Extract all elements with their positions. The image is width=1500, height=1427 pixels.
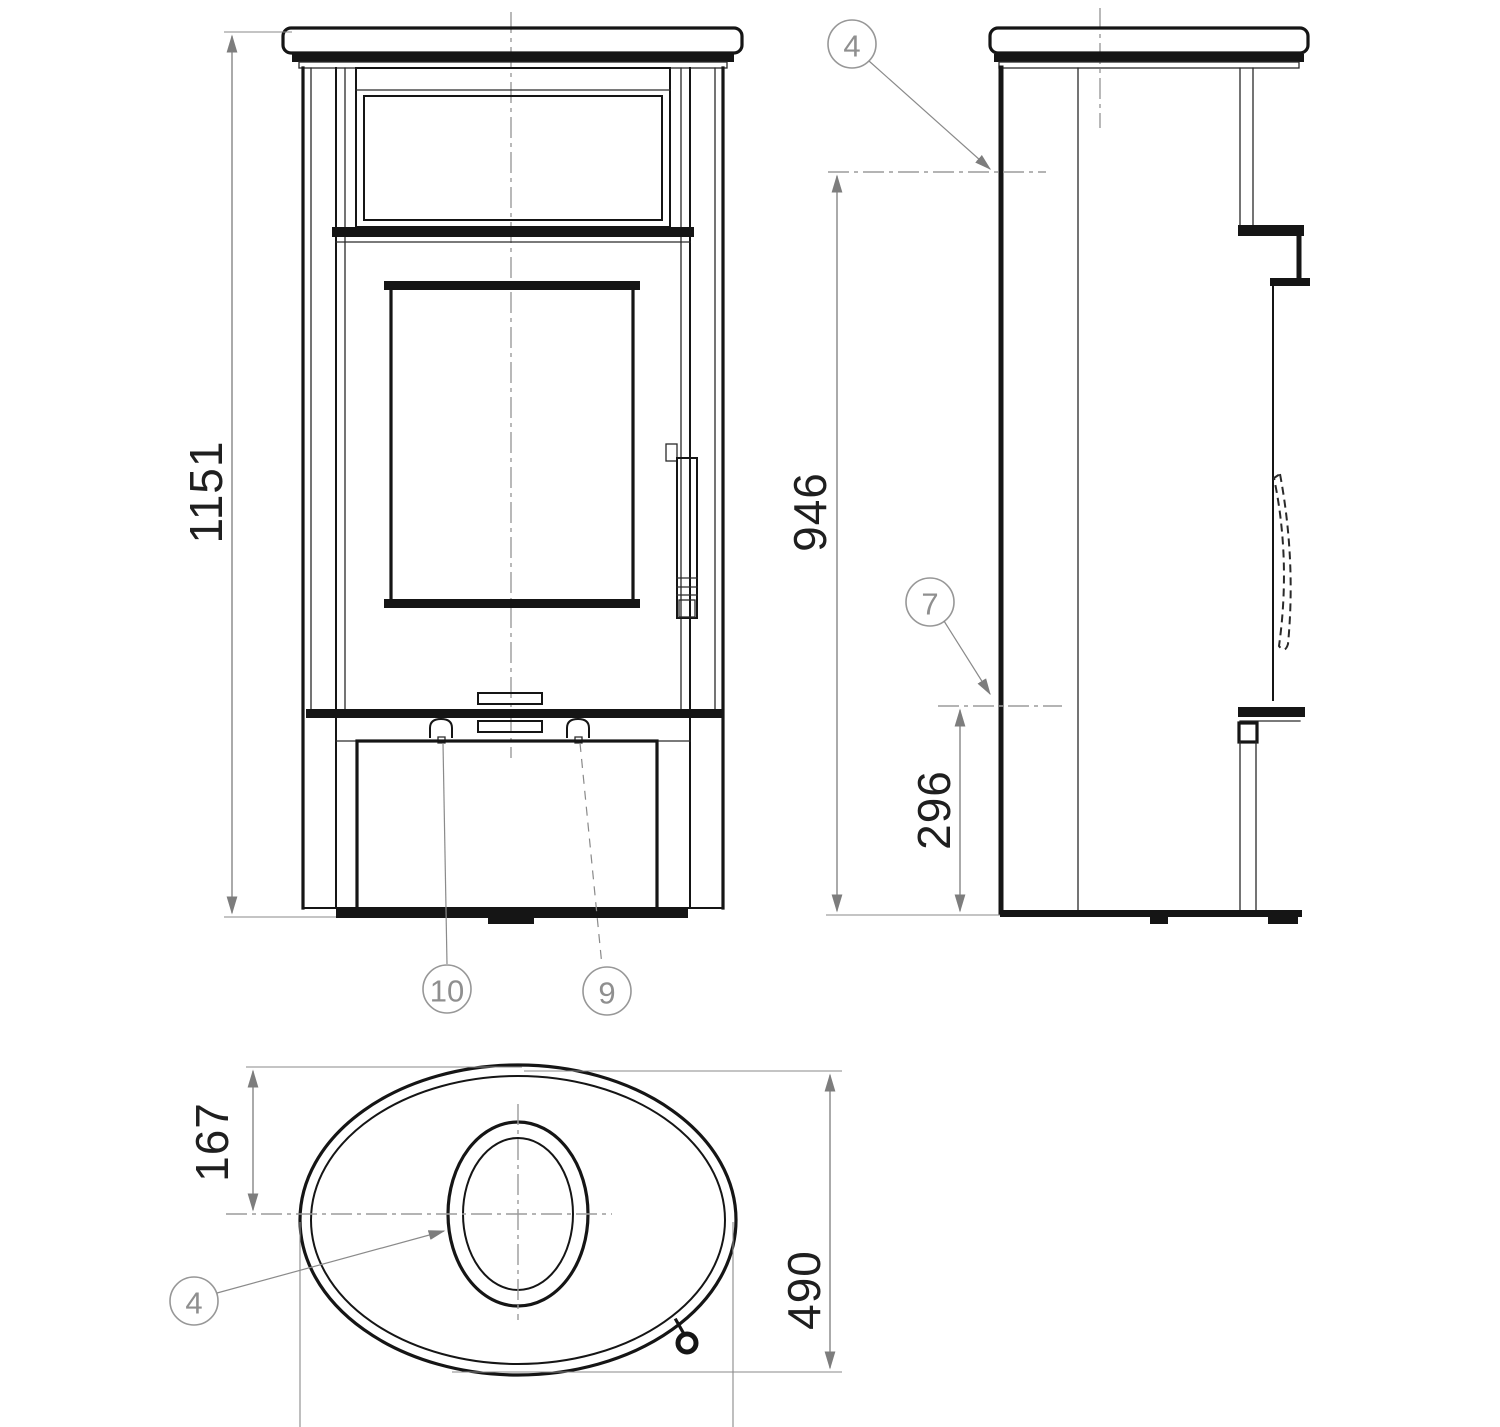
callout-10-label: 10 [430, 974, 464, 1009]
window-top-bar [384, 281, 640, 290]
top-167-dimension: 167 [186, 1067, 522, 1210]
callout-4-top-label: 4 [185, 1286, 202, 1321]
air-slot-upper [478, 693, 542, 704]
side-door-profile [1238, 225, 1310, 910]
control-knob-right [567, 719, 589, 737]
top-slab-band [292, 54, 734, 62]
air-slot-lower [478, 721, 542, 732]
front-base [336, 741, 690, 924]
warming-compartment-opening [364, 96, 662, 220]
front-top-slab [283, 28, 742, 68]
front-body-columns [303, 68, 723, 908]
control-knob-left [430, 719, 452, 737]
dim-label-946: 946 [784, 472, 836, 552]
stove-dimension-drawing: 1151 10 9 [0, 0, 1500, 1427]
side-door-handle [1274, 474, 1291, 650]
side-296-dimension: 296 [908, 710, 960, 911]
callout-4-top: 4 [170, 1231, 444, 1325]
front-view: 1151 10 9 [180, 12, 742, 1015]
drawing-canvas: 1151 10 9 [0, 0, 1500, 1427]
callout-7: 7 [906, 578, 990, 694]
dim-label-490: 490 [778, 1250, 830, 1330]
top-view-handle [676, 1320, 696, 1352]
window-bottom-bar [384, 599, 640, 608]
callout-10: 10 [423, 743, 471, 1013]
front-air-controls [306, 693, 722, 743]
front-door-window [384, 281, 640, 608]
side-946-dimension: 946 [784, 176, 1000, 915]
top-slab-outline [283, 28, 742, 53]
warming-shelf-bar [332, 227, 694, 237]
hearth-band [306, 709, 722, 718]
callout-4-side: 4 [828, 20, 990, 169]
side-body [1001, 68, 1253, 912]
dim-label-167: 167 [186, 1102, 238, 1182]
callout-9-label: 9 [598, 976, 615, 1011]
top-490-dimension: 490 [452, 1071, 842, 1372]
side-base [1000, 910, 1302, 924]
front-height-dimension: 1151 [180, 32, 336, 917]
dim-label-1151: 1151 [180, 441, 232, 544]
top-view: 167 490 4 [170, 1065, 842, 1427]
front-warming-compartment [332, 68, 694, 242]
callout-9: 9 [580, 743, 631, 1015]
warming-compartment-frame [356, 68, 670, 227]
callout-4-side-label: 4 [843, 29, 860, 64]
side-top-slab [990, 28, 1308, 68]
side-view: 946 296 4 7 [784, 8, 1310, 924]
base-foot [488, 918, 534, 924]
base-bottom-bar [336, 909, 688, 918]
callout-7-label: 7 [921, 587, 938, 622]
base-door-frame [357, 741, 657, 909]
dim-label-296: 296 [908, 770, 960, 850]
